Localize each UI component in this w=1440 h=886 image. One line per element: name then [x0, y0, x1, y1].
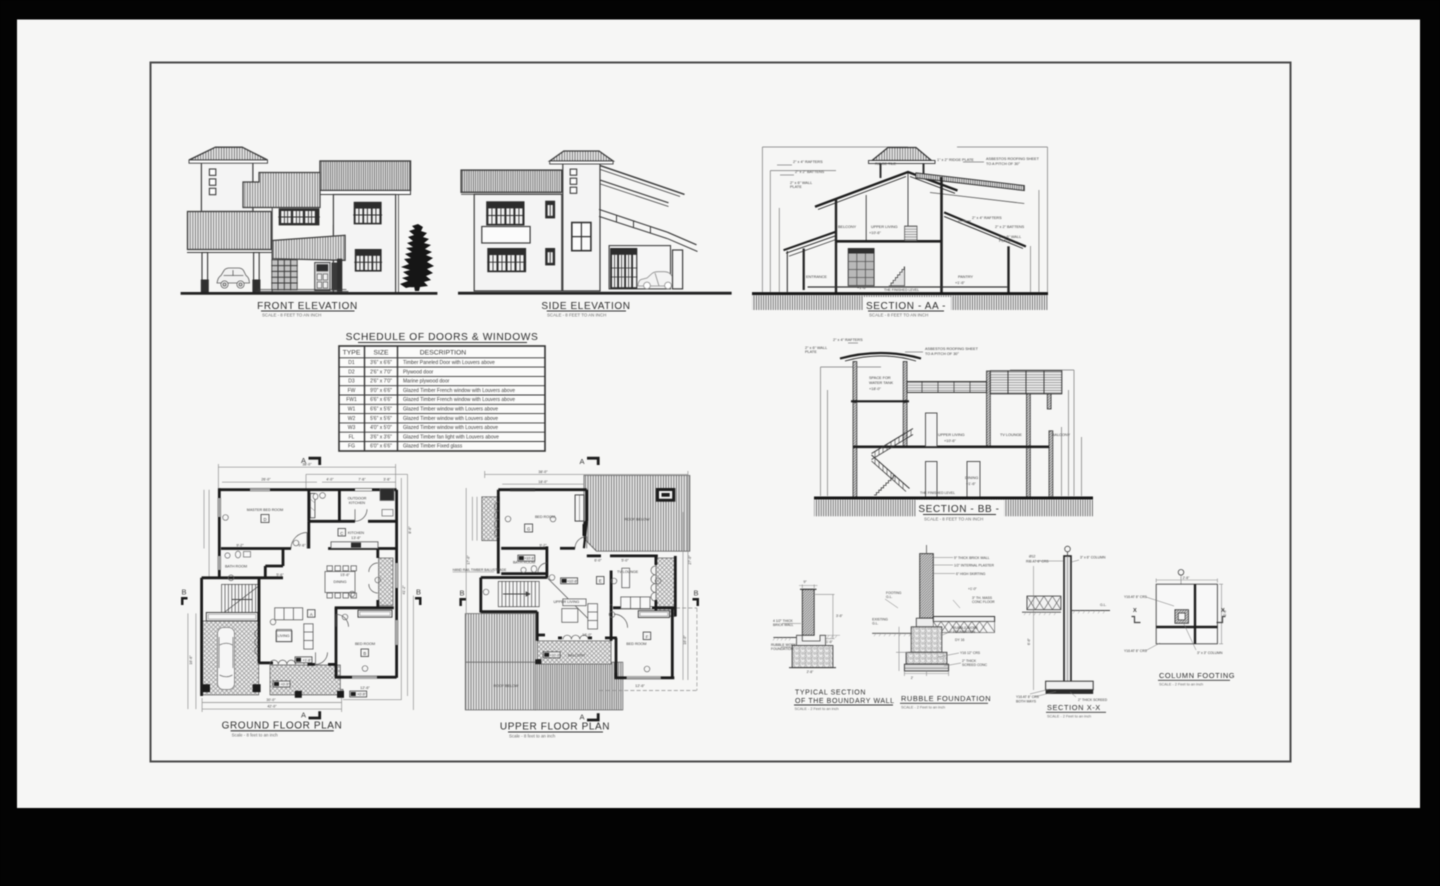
svg-text:E: E	[599, 579, 602, 584]
svg-text:SCALE - 2 Feet to an inch: SCALE - 2 Feet to an inch	[1047, 714, 1091, 718]
svg-text:3" x 3" COLUMN: 3" x 3" COLUMN	[1197, 651, 1223, 655]
svg-text:Glazed Timber fan light with L: Glazed Timber fan light with Louvers abo…	[403, 434, 499, 440]
svg-text:X: X	[1221, 608, 1225, 614]
svg-text:15'-6": 15'-6"	[340, 573, 350, 577]
svg-text:F: F	[646, 634, 649, 639]
svg-text:MASTER BED ROOM: MASTER BED ROOM	[247, 508, 283, 512]
svg-text:UPPER LIVING: UPPER LIVING	[553, 600, 579, 604]
svg-text:8'-6": 8'-6"	[408, 526, 412, 534]
svg-text:FRONT ELEVATION: FRONT ELEVATION	[257, 301, 358, 312]
svg-text:2'-6": 2'-6"	[807, 670, 815, 674]
svg-text:RIB AT 6" CRS: RIB AT 6" CRS	[1026, 560, 1049, 564]
svg-text:13'-6": 13'-6"	[351, 536, 361, 540]
svg-text:9'-2": 9'-2"	[539, 544, 547, 548]
svg-text:THE FINISHED LEVEL: THE FINISHED LEVEL	[920, 491, 955, 495]
svg-text:HAND RAIL TIMBER BALUSTRADE: HAND RAIL TIMBER BALUSTRADE	[453, 568, 507, 572]
svg-text:TO A PITCH OF 30°: TO A PITCH OF 30°	[986, 162, 1020, 166]
svg-text:+18'-0": +18'-0"	[869, 387, 882, 391]
svg-text:2" x 2" BATTENS: 2" x 2" BATTENS	[795, 170, 825, 174]
svg-text:2" x 4" RAFTERS: 2" x 4" RAFTERS	[833, 338, 863, 342]
svg-text:6'-6": 6'-6"	[1027, 637, 1031, 645]
svg-text:Scale - 8 feet to an inch: Scale - 8 feet to an inch	[509, 734, 556, 739]
svg-text:42'-0": 42'-0"	[267, 705, 277, 709]
svg-text:G.L.: G.L.	[872, 622, 878, 626]
svg-text:+1'-6": +1'-6"	[955, 281, 965, 285]
svg-text:7'-6": 7'-6"	[358, 478, 366, 482]
svg-text:SECTION X-X: SECTION X-X	[1047, 703, 1101, 712]
svg-text:ASBESTOS ROOFING SHEET: ASBESTOS ROOFING SHEET	[925, 347, 979, 351]
svg-text:4'-0": 4'-0"	[326, 478, 334, 482]
svg-text:Glazed Timber French window wi: Glazed Timber French window with Louvers…	[403, 397, 515, 403]
svg-text:+1'-6": +1'-6"	[303, 658, 313, 662]
svg-text:6" HIGH SKIRTING: 6" HIGH SKIRTING	[956, 572, 986, 576]
svg-text:BALCONY: BALCONY	[1052, 433, 1071, 437]
svg-text:18'-0": 18'-0"	[538, 480, 548, 484]
svg-text:KITCHEN: KITCHEN	[349, 501, 366, 505]
svg-text:38'-0": 38'-0"	[538, 470, 548, 474]
svg-text:PLATE: PLATE	[790, 185, 802, 189]
svg-text:FL: FL	[349, 434, 355, 440]
svg-text:2'-6": 2'-6"	[1183, 576, 1191, 580]
svg-text:DESCRIPTION: DESCRIPTION	[420, 350, 467, 357]
svg-text:SCALE - 8 FEET TO AN INCH: SCALE - 8 FEET TO AN INCH	[869, 313, 928, 318]
svg-text:Scale - 8 feet to an inch: Scale - 8 feet to an inch	[232, 732, 279, 737]
svg-text:27'-0": 27'-0"	[688, 555, 692, 565]
svg-text:FOUNDATION: FOUNDATION	[771, 647, 794, 651]
svg-text:6'6" x 6'6": 6'6" x 6'6"	[370, 397, 392, 403]
svg-text:ROOF BELOW: ROOF BELOW	[494, 684, 520, 688]
svg-text:X: X	[1133, 608, 1137, 614]
svg-text:Plywood door: Plywood door	[403, 369, 434, 375]
svg-text:2': 2'	[911, 676, 914, 680]
svg-text:12'-6": 12'-6"	[360, 686, 370, 690]
svg-text:9'-2": 9'-2"	[236, 544, 244, 548]
svg-text:D1: D1	[348, 360, 355, 366]
svg-text:SECTION - BB -: SECTION - BB -	[918, 504, 999, 515]
svg-text:+10'-6": +10'-6"	[869, 231, 882, 235]
svg-text:PLATE: PLATE	[999, 239, 1011, 243]
svg-text:3" x 6" COLUMN: 3" x 6" COLUMN	[1080, 556, 1106, 560]
svg-text:30'-0": 30'-0"	[266, 698, 276, 702]
svg-text:A: A	[579, 713, 584, 722]
svg-text:5'6" x 5'6": 5'6" x 5'6"	[370, 416, 392, 422]
svg-text:CONC FLOOR: CONC FLOOR	[972, 600, 995, 604]
svg-text:LIVING: LIVING	[277, 634, 289, 638]
svg-text:G: G	[527, 527, 530, 532]
svg-text:2" x 4" RAFTERS: 2" x 4" RAFTERS	[793, 160, 823, 164]
svg-text:2'6" x 7'0": 2'6" x 7'0"	[370, 369, 392, 375]
svg-text:Glazed Timber window with Louv: Glazed Timber window with Louvers above	[403, 425, 498, 431]
svg-text:5'-6": 5'-6"	[276, 573, 284, 577]
svg-text:SCALE - 2 Feet to an inch: SCALE - 2 Feet to an inch	[795, 707, 839, 711]
svg-text:OF THE BOUNDARY WALL: OF THE BOUNDARY WALL	[795, 698, 895, 705]
svg-text:1'-6": 1'-6"	[826, 640, 834, 644]
svg-text:1" x 2" RIDGE PLATE: 1" x 2" RIDGE PLATE	[937, 158, 974, 162]
svg-text:6'-0": 6'-0"	[594, 559, 602, 563]
svg-text:12'-6": 12'-6"	[635, 684, 645, 688]
svg-text:4'0" x 5'0": 4'0" x 5'0"	[370, 425, 392, 431]
svg-text:ASBESTOS ROOFING SHEET: ASBESTOS ROOFING SHEET	[986, 157, 1040, 161]
svg-text:+1'-0": +1'-0"	[968, 587, 978, 591]
svg-text:3'6" x 6'6": 3'6" x 6'6"	[370, 360, 392, 366]
svg-text:W1: W1	[348, 407, 356, 413]
svg-text:2" x 4" RAFTERS: 2" x 4" RAFTERS	[972, 216, 1002, 220]
svg-text:9" THICK BRICK WALL: 9" THICK BRICK WALL	[954, 556, 990, 560]
svg-text:17'-0": 17'-0"	[467, 555, 471, 565]
svg-text:26'-0": 26'-0"	[261, 478, 271, 482]
svg-text:Y16 12" CRS: Y16 12" CRS	[960, 651, 981, 655]
svg-text:SCALE - 8 FEET TO AN INCH: SCALE - 8 FEET TO AN INCH	[262, 313, 321, 318]
svg-text:WATER TANK: WATER TANK	[869, 381, 894, 385]
svg-text:TYPE: TYPE	[343, 350, 361, 357]
svg-text:TV LOUNGE: TV LOUNGE	[1000, 433, 1022, 437]
svg-text:KITCHEN: KITCHEN	[348, 531, 365, 535]
svg-text:W2: W2	[348, 416, 356, 422]
svg-text:FW1: FW1	[346, 397, 357, 403]
svg-text:THE FINISHED LEVEL: THE FINISHED LEVEL	[884, 288, 919, 292]
svg-text:Marine plywood door: Marine plywood door	[403, 379, 450, 385]
svg-text:SCREED CONC: SCREED CONC	[962, 663, 988, 667]
svg-text:RIDGE TILE: RIDGE TILE	[875, 162, 896, 166]
svg-text:Ø12: Ø12	[1029, 555, 1036, 559]
svg-text:A: A	[301, 711, 306, 720]
svg-text:UPPER FLOOR PLAN: UPPER FLOOR PLAN	[500, 722, 610, 733]
svg-text:GROUND FLOOR PLAN: GROUND FLOOR PLAN	[222, 721, 343, 732]
svg-text:16'-6": 16'-6"	[189, 655, 193, 665]
svg-text:TYPICAL SECTION: TYPICAL SECTION	[795, 690, 866, 697]
svg-text:COLUMN FOOTING: COLUMN FOOTING	[1159, 671, 1235, 680]
svg-text:+1'-6": +1'-6"	[857, 286, 867, 290]
svg-text:B: B	[416, 588, 421, 597]
svg-text:3'-6": 3'-6"	[383, 478, 391, 482]
svg-text:SCALE - 2 Feet to an inch: SCALE - 2 Feet to an inch	[1159, 682, 1203, 686]
svg-text:Glazed Timber Fixed glass: Glazed Timber Fixed glass	[403, 444, 463, 450]
svg-text:Glazed Timber window with Louv: Glazed Timber window with Louvers above	[403, 416, 498, 422]
svg-text:G.L.: G.L.	[886, 595, 892, 599]
svg-text:BED ROOM: BED ROOM	[355, 642, 375, 646]
svg-text:RUBBLE FOUNDATION: RUBBLE FOUNDATION	[901, 694, 991, 703]
svg-text:DINING: DINING	[334, 580, 347, 584]
svg-text:16'-0": 16'-0"	[582, 633, 592, 637]
svg-text:16'-0": 16'-0"	[683, 635, 687, 645]
svg-text:9'0" x 6'6": 9'0" x 6'6"	[370, 388, 392, 394]
svg-text:+10'-0": +10'-0"	[550, 653, 561, 657]
svg-text:FW: FW	[348, 388, 356, 394]
svg-text:+10'-6": +10'-6"	[567, 579, 578, 583]
svg-text:SCALE - 2 Feet to an inch: SCALE - 2 Feet to an inch	[901, 705, 945, 709]
svg-text:6'6" x 5'6": 6'6" x 5'6"	[370, 407, 392, 413]
svg-text:SECTION - AA -: SECTION - AA -	[866, 301, 946, 312]
svg-text:Y16 AT 6" CRS: Y16 AT 6" CRS	[1124, 595, 1148, 599]
svg-text:UPPER LIVING: UPPER LIVING	[871, 225, 898, 229]
svg-text:BATH ROOM: BATH ROOM	[225, 565, 247, 569]
svg-text:B: B	[181, 588, 186, 597]
svg-text:9'-6": 9'-6"	[298, 544, 306, 548]
svg-text:2" x 2" BATTENS: 2" x 2" BATTENS	[995, 225, 1025, 229]
svg-text:SCHEDULE OF DOORS & WINDOWS: SCHEDULE OF DOORS & WINDOWS	[346, 332, 539, 343]
svg-text:UPPER LIVING: UPPER LIVING	[938, 433, 965, 437]
svg-text:Glazed Timber window with Louv: Glazed Timber window with Louvers above	[403, 407, 498, 413]
svg-text:Y16 AT 6" CRS: Y16 AT 6" CRS	[1016, 695, 1040, 699]
svg-text:Glazed Timber French window wi: Glazed Timber French window with Louvers…	[403, 388, 515, 394]
svg-text:A: A	[579, 457, 584, 466]
svg-text:ENTRANCE: ENTRANCE	[806, 275, 827, 279]
svg-text:C: C	[340, 531, 343, 536]
svg-text:B: B	[459, 589, 464, 598]
svg-text:D3: D3	[348, 379, 355, 385]
svg-text:SCALE - 8 FEET TO AN INCH: SCALE - 8 FEET TO AN INCH	[924, 517, 983, 522]
svg-text:B: B	[693, 589, 698, 598]
svg-text:SCALE - 8 FEET TO AN INCH: SCALE - 8 FEET TO AN INCH	[547, 313, 606, 318]
svg-text:+10'-6": +10'-6"	[944, 439, 957, 443]
svg-text:2'6" x 7'0": 2'6" x 7'0"	[370, 379, 392, 385]
svg-text:W3: W3	[348, 425, 356, 431]
svg-text:BALCONY: BALCONY	[568, 654, 586, 658]
svg-text:41'-2": 41'-2"	[402, 585, 406, 595]
svg-text:BELCONY: BELCONY	[838, 225, 857, 229]
svg-text:FOUNDATION: FOUNDATION	[953, 630, 976, 634]
svg-text:Timber Paneled Door with Louve: Timber Paneled Door with Louvers above	[403, 360, 495, 366]
svg-text:3'-6": 3'-6"	[836, 614, 844, 618]
svg-text:Y16 AT 6" CRS: Y16 AT 6" CRS	[1124, 649, 1148, 653]
svg-text:SIZE: SIZE	[373, 350, 389, 357]
svg-text:OUTDOOR: OUTDOOR	[348, 497, 367, 501]
svg-text:G.L.: G.L.	[1100, 603, 1106, 607]
svg-text:D: D	[263, 517, 266, 522]
svg-text:DINING: DINING	[965, 476, 978, 480]
svg-text:2" THICK SCREED: 2" THICK SCREED	[1078, 698, 1108, 702]
svg-text:DY 16: DY 16	[955, 638, 964, 642]
svg-text:+1'-6": +1'-6"	[966, 482, 976, 486]
svg-text:BED ROOM: BED ROOM	[535, 515, 555, 519]
svg-text:PLATE: PLATE	[805, 350, 817, 354]
svg-text:A: A	[310, 612, 313, 617]
svg-text:6'0" x 6'6": 6'0" x 6'6"	[370, 444, 392, 450]
svg-text:A: A	[301, 456, 306, 465]
svg-text:+10'-6": +10'-6"	[524, 557, 535, 561]
svg-text:PANTRY: PANTRY	[958, 275, 974, 279]
svg-text:TO A PITCH OF 30°: TO A PITCH OF 30°	[925, 352, 959, 356]
svg-text:BED ROOM: BED ROOM	[626, 642, 646, 646]
svg-text:SIDE ELEVATION: SIDE ELEVATION	[541, 301, 630, 312]
svg-text:3'6" x 3'6": 3'6" x 3'6"	[370, 434, 392, 440]
svg-text:+0'-9": +0'-9"	[357, 693, 367, 697]
svg-text:TV LOUNGE: TV LOUNGE	[617, 570, 639, 574]
svg-text:BOTH WAYS: BOTH WAYS	[1016, 700, 1037, 704]
svg-text:D2: D2	[348, 369, 355, 375]
svg-text:ROOF BELOW: ROOF BELOW	[625, 518, 651, 522]
svg-text:SPACE FOR: SPACE FOR	[869, 376, 891, 380]
svg-text:+0'-9": +0'-9"	[281, 683, 291, 687]
svg-text:FG: FG	[348, 444, 355, 450]
svg-text:5'-0": 5'-0"	[621, 559, 629, 563]
svg-text:1/2" INTERNAL PLASTER: 1/2" INTERNAL PLASTER	[954, 564, 994, 568]
svg-text:B: B	[363, 651, 366, 656]
